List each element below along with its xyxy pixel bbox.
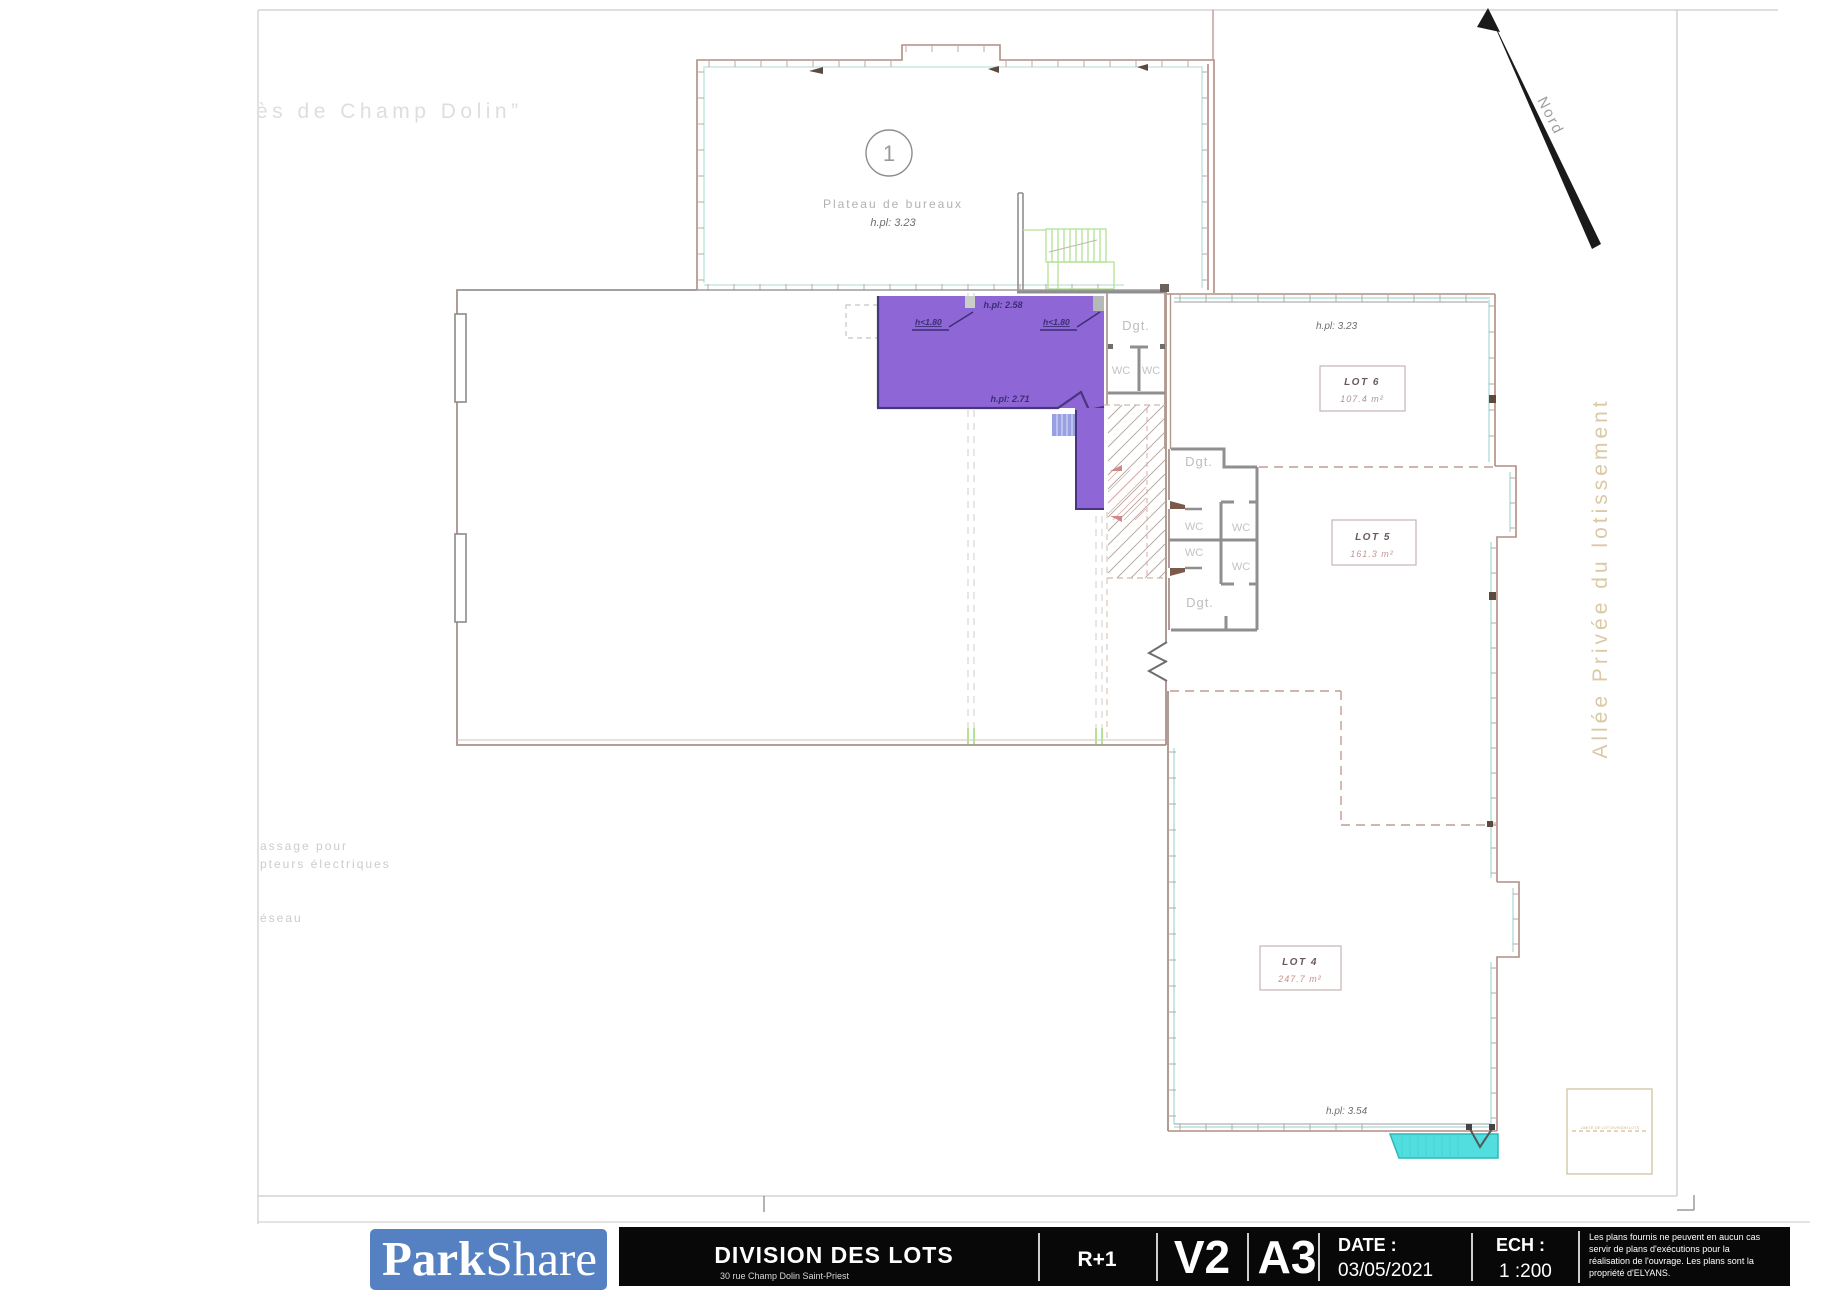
svg-text:LOT 6: LOT 6: [1344, 377, 1380, 388]
svg-text:ECH :: ECH :: [1496, 1235, 1545, 1255]
svg-text:161.3 m²: 161.3 m²: [1350, 549, 1394, 559]
svg-text:h<1.80: h<1.80: [1043, 317, 1070, 327]
svg-text:LOT 4: LOT 4: [1282, 957, 1318, 968]
svg-text:Dgt.: Dgt.: [1122, 318, 1150, 333]
svg-text:DATE :: DATE :: [1338, 1235, 1397, 1255]
svg-text:LOT 5: LOT 5: [1355, 532, 1391, 543]
svg-text:assage pour: assage pour: [260, 839, 348, 853]
svg-text:DIVISION DES LOTS: DIVISION DES LOTS: [714, 1242, 953, 1268]
svg-text:h.pl: 2.58: h.pl: 2.58: [983, 300, 1022, 310]
svg-text:h.pl: 3.54: h.pl: 3.54: [1326, 1106, 1368, 1117]
svg-text:servir de plans d'exécution: servir de plans d'exécutions pour la: [1589, 1244, 1730, 1254]
svg-text:A3: A3: [1258, 1231, 1317, 1283]
svg-text:Plateau de bureaux: Plateau de bureaux: [823, 197, 963, 211]
svg-text:éseau: éseau: [260, 911, 303, 925]
svg-text:R+1: R+1: [1077, 1248, 1116, 1271]
svg-text:Allée Privée du lotissement: Allée Privée du lotissement: [1589, 397, 1612, 758]
svg-text:WC: WC: [1112, 365, 1130, 377]
svg-text:1: 1: [883, 141, 895, 166]
svg-text:propriété d'ELYANS.: propriété d'ELYANS.: [1589, 1268, 1670, 1278]
svg-text:h.pl: 3.23: h.pl: 3.23: [870, 217, 916, 229]
svg-text:ParkShare: ParkShare: [382, 1231, 597, 1286]
svg-text:h<1.80: h<1.80: [915, 317, 942, 327]
svg-text:WC: WC: [1232, 561, 1250, 573]
svg-text:03/05/2021: 03/05/2021: [1338, 1260, 1433, 1281]
svg-text:WC: WC: [1185, 521, 1203, 533]
svg-text:30 rue Champ Dolin Saint-Pries: 30 rue Champ Dolin Saint-Priest: [720, 1271, 850, 1281]
svg-text:V2: V2: [1174, 1231, 1230, 1283]
svg-text:WC: WC: [1185, 547, 1203, 559]
svg-text:h.pl: 3.23: h.pl: 3.23: [1316, 321, 1358, 332]
svg-text:réalisation de l'ouvrage. Les: réalisation de l'ouvrage. Les plans sont…: [1589, 1256, 1754, 1266]
svg-text:WC: WC: [1232, 522, 1250, 534]
svg-text:107.4 m²: 107.4 m²: [1340, 394, 1384, 404]
svg-text:h.pl: 2.71: h.pl: 2.71: [990, 394, 1029, 404]
svg-text:LIMITE DE LOT DIVISION LOTS: LIMITE DE LOT DIVISION LOTS: [1581, 1125, 1640, 1130]
svg-text:WC: WC: [1142, 365, 1160, 377]
svg-text:247.7 m²: 247.7 m²: [1277, 974, 1322, 984]
svg-text:Dgt.: Dgt.: [1185, 454, 1213, 469]
svg-text:Dgt.: Dgt.: [1186, 595, 1214, 610]
svg-text:Les plans fournis ne peuvent e: Les plans fournis ne peuvent en aucun ca…: [1589, 1232, 1761, 1242]
svg-text:ès de Champ Dolin”: ès de Champ Dolin”: [256, 100, 523, 123]
svg-text:pteurs électriques: pteurs électriques: [260, 857, 391, 871]
svg-text:1 :200: 1 :200: [1499, 1261, 1552, 1282]
